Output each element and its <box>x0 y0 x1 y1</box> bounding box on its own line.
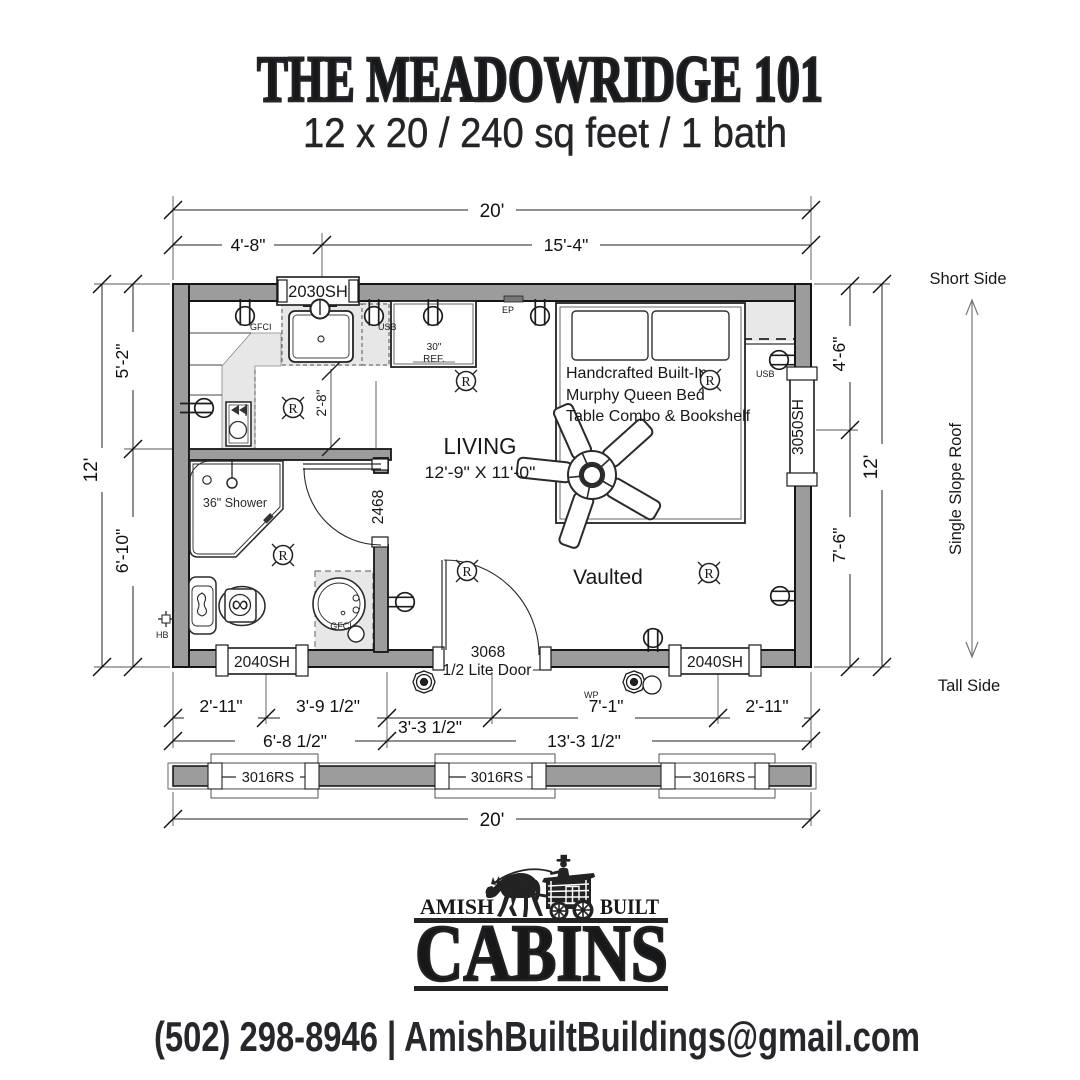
svg-text:1/2 Lite Door: 1/2 Lite Door <box>443 662 532 679</box>
svg-text:3'-3 1/2": 3'-3 1/2" <box>398 717 462 737</box>
svg-text:R: R <box>288 402 298 417</box>
svg-text:GFCI: GFCI <box>330 621 352 631</box>
svg-text:20': 20' <box>480 201 505 222</box>
svg-text:36" Shower: 36" Shower <box>203 496 267 510</box>
svg-text:∞: ∞ <box>231 591 248 618</box>
svg-text:R: R <box>461 375 471 390</box>
svg-text:2'-11": 2'-11" <box>199 696 242 716</box>
svg-text:Handcrafted Built-In: Handcrafted Built-In <box>566 365 707 382</box>
svg-text:R: R <box>704 567 714 582</box>
svg-text:REF.: REF. <box>423 354 445 365</box>
svg-text:Vaulted: Vaulted <box>573 566 643 589</box>
svg-text:EP: EP <box>502 305 514 315</box>
svg-text:12': 12' <box>861 455 882 480</box>
svg-text:20': 20' <box>480 810 505 831</box>
svg-text:R: R <box>278 549 288 564</box>
svg-text:USB: USB <box>756 369 775 379</box>
svg-text:R: R <box>705 374 715 389</box>
svg-text:12 x 20 / 240 sq feet / 1 bath: 12 x 20 / 240 sq feet / 1 bath <box>303 109 787 156</box>
svg-text:12'-9" X 11'-0": 12'-9" X 11'-0" <box>425 463 536 482</box>
svg-text:LIVING: LIVING <box>444 433 517 459</box>
svg-text:2468: 2468 <box>370 490 387 524</box>
svg-text:Table Combo & Bookshelf: Table Combo & Bookshelf <box>566 408 751 425</box>
svg-text:7'-6": 7'-6" <box>829 528 849 563</box>
svg-text:2040SH: 2040SH <box>687 654 743 671</box>
svg-text:(502) 298-8946 | AmishBuiltBui: (502) 298-8946 | AmishBuiltBuildings@gma… <box>154 1013 920 1061</box>
svg-text:3068: 3068 <box>471 644 505 661</box>
svg-text:USB: USB <box>378 322 397 332</box>
svg-text:12': 12' <box>81 458 102 483</box>
svg-text:WP: WP <box>584 690 599 700</box>
svg-text:Tall Side: Tall Side <box>938 677 1000 695</box>
svg-text:R: R <box>462 565 472 580</box>
svg-text:6'-8 1/2": 6'-8 1/2" <box>263 731 327 751</box>
svg-text:3016RS: 3016RS <box>693 770 745 786</box>
svg-text:2'-11": 2'-11" <box>745 696 788 716</box>
svg-text:2030SH: 2030SH <box>288 283 348 301</box>
svg-text:2'-8": 2'-8" <box>314 389 329 416</box>
svg-text:CABINS: CABINS <box>415 910 668 998</box>
svg-text:HB: HB <box>156 630 169 640</box>
svg-text:13'-3 1/2": 13'-3 1/2" <box>547 731 621 751</box>
svg-text:THE MEADOWRIDGE 101: THE MEADOWRIDGE 101 <box>257 43 823 116</box>
svg-text:Murphy Queen Bed: Murphy Queen Bed <box>566 387 705 404</box>
svg-text:4'-8": 4'-8" <box>231 235 266 255</box>
svg-text:3016RS: 3016RS <box>471 770 523 786</box>
svg-text:6'-10": 6'-10" <box>112 529 132 574</box>
svg-text:30": 30" <box>427 342 442 353</box>
svg-text:15'-4": 15'-4" <box>544 235 589 255</box>
svg-text:2040SH: 2040SH <box>234 654 290 671</box>
svg-text:Single Slope Roof: Single Slope Roof <box>947 423 965 556</box>
svg-text:Short Side: Short Side <box>929 270 1006 288</box>
svg-text:3016RS: 3016RS <box>242 770 294 786</box>
svg-text:5'-2": 5'-2" <box>112 344 132 379</box>
svg-text:3050SH: 3050SH <box>790 399 807 455</box>
svg-text:3'-9 1/2": 3'-9 1/2" <box>296 696 360 716</box>
svg-text:4'-6": 4'-6" <box>829 337 849 372</box>
svg-text:GFCI: GFCI <box>250 322 272 332</box>
